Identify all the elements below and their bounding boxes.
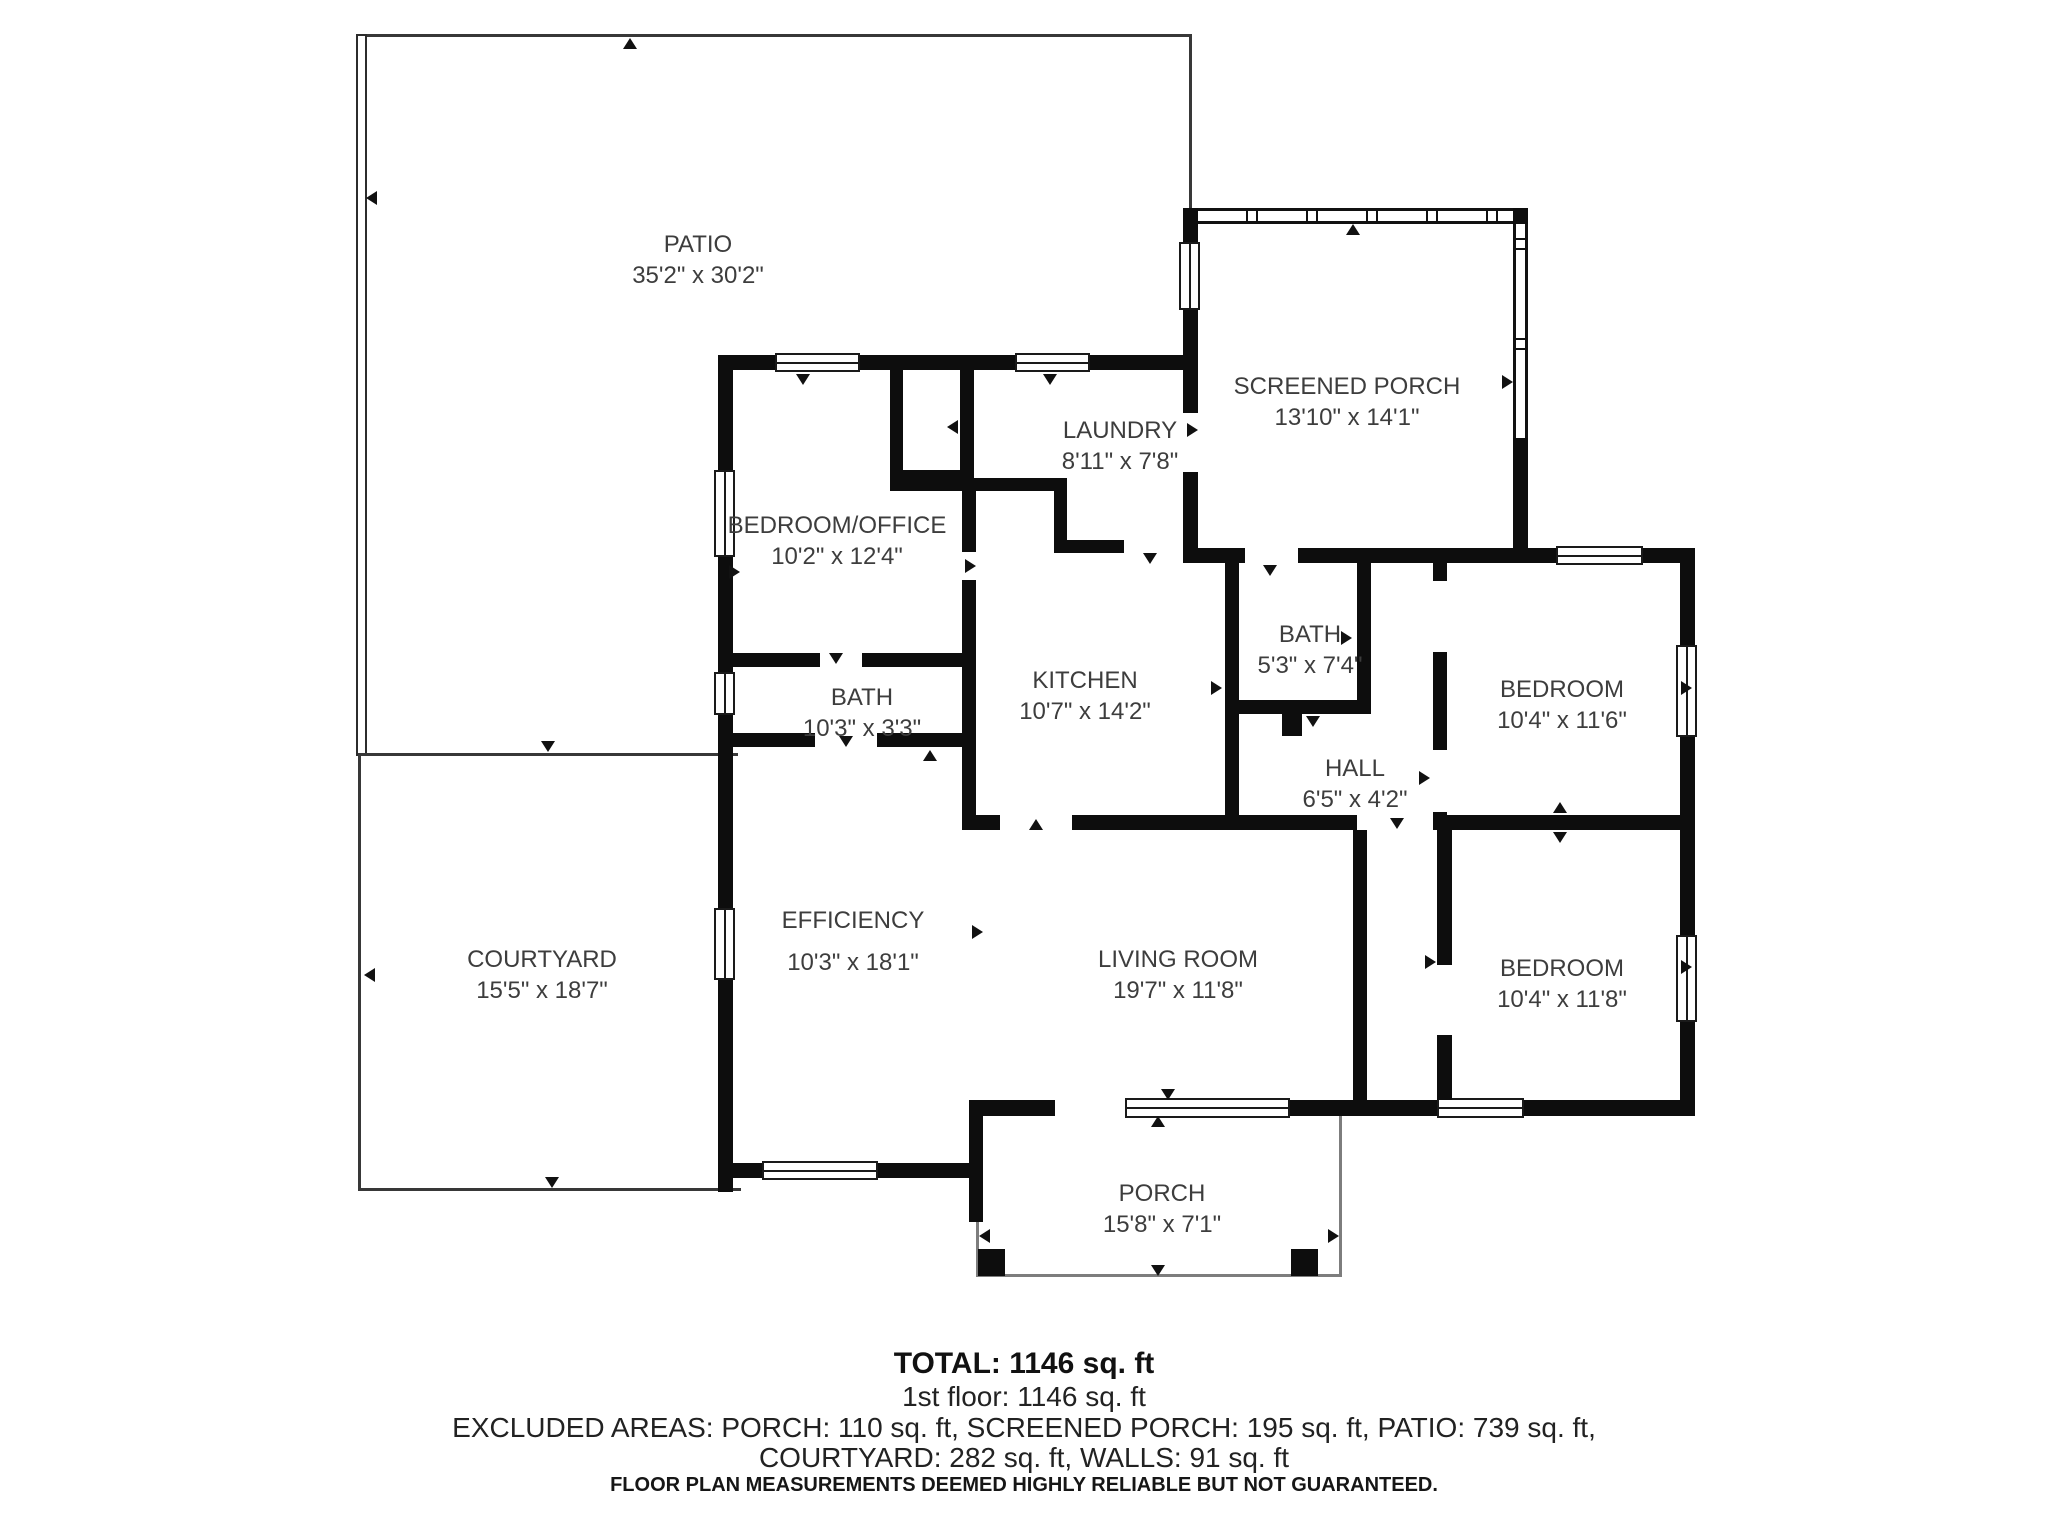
- room-label-bath-small: BATH 10'3" x 3'3": [672, 682, 1052, 744]
- disclaimer-text: FLOOR PLAN MEASUREMENTS DEEMED HIGHLY RE…: [0, 1474, 2048, 1497]
- room-label-hall: HALL 6'5" x 4'2": [1165, 753, 1545, 815]
- wall-segment: [1513, 438, 1528, 548]
- wall-segment: [1183, 472, 1198, 563]
- direction-arrow-icon: [1553, 832, 1567, 843]
- direction-arrow-icon: [545, 1177, 559, 1188]
- direction-arrow-icon: [829, 653, 843, 664]
- room-dims: 10'2" x 12'4": [647, 541, 1027, 572]
- wall-segment: [1054, 540, 1124, 553]
- wall-segment: [718, 355, 733, 470]
- direction-arrow-icon: [1553, 802, 1567, 813]
- wall-segment: [878, 1163, 983, 1178]
- room-label-living-room: LIVING ROOM 19'7" x 11'8": [988, 944, 1368, 1006]
- room-dims: 15'5" x 18'7": [352, 975, 732, 1006]
- direction-arrow-icon: [1306, 716, 1320, 727]
- wall-segment: [1680, 548, 1695, 645]
- room-label-patio: PATIO 35'2" x 30'2": [508, 229, 888, 291]
- direction-arrow-icon: [796, 374, 810, 385]
- direction-arrow-icon: [1390, 818, 1404, 829]
- wall-segment: [1290, 1100, 1437, 1116]
- wall-segment: [1072, 815, 1239, 830]
- wall-segment: [1524, 1100, 1695, 1116]
- window: [762, 1161, 878, 1180]
- window: [1015, 353, 1090, 372]
- wall-segment: [1183, 208, 1198, 242]
- screen-wall-corner: [1513, 208, 1528, 224]
- room-name: HALL: [1165, 753, 1545, 784]
- excluded-areas-text-line1: EXCLUDED AREAS: PORCH: 110 sq. ft, SCREE…: [0, 1412, 2048, 1444]
- room-label-bedroom-lower: BEDROOM 10'4" x 11'8": [1372, 953, 1752, 1015]
- wall-segment: [733, 355, 775, 370]
- direction-arrow-icon: [541, 741, 555, 752]
- patio-bottom-line: [358, 753, 738, 756]
- wall-segment: [1239, 815, 1357, 830]
- direction-arrow-icon: [1143, 553, 1157, 564]
- room-name: BEDROOM: [1372, 674, 1752, 705]
- floor-plan: PATIO 35'2" x 30'2" SCREENED PORCH 13'10…: [0, 0, 2048, 1536]
- wall-segment: [1437, 815, 1695, 830]
- wall-segment: [1437, 830, 1452, 965]
- direction-arrow-icon: [923, 750, 937, 761]
- wall-segment: [1437, 1035, 1452, 1100]
- wall-segment: [1433, 563, 1447, 581]
- window: [1179, 242, 1200, 310]
- room-name: PORCH: [972, 1178, 1352, 1209]
- wall-segment: [1282, 714, 1302, 736]
- porch-post: [978, 1249, 1005, 1276]
- wall-segment: [860, 355, 1015, 370]
- wall-segment: [890, 370, 903, 470]
- window: [1437, 1098, 1524, 1118]
- wall-segment: [1680, 737, 1695, 935]
- total-area-text: TOTAL: 1146 sq. ft: [0, 1347, 2048, 1381]
- room-dims: 10'4" x 11'6": [1372, 705, 1752, 736]
- room-name: BEDROOM: [1372, 953, 1752, 984]
- room-label-bedroom-office: BEDROOM/OFFICE 10'2" x 12'4": [647, 510, 1027, 572]
- room-dims: 35'2" x 30'2": [508, 260, 888, 291]
- room-label-efficiency: EFFICIENCY 10'3" x 18'1": [663, 905, 1043, 978]
- wall-segment: [1198, 548, 1245, 563]
- room-name: EFFICIENCY: [663, 905, 1043, 936]
- wall-segment: [890, 478, 1067, 491]
- room-label-porch: PORCH 15'8" x 7'1": [972, 1178, 1352, 1240]
- direction-arrow-icon: [1151, 1116, 1165, 1127]
- room-dims: 15'8" x 7'1": [972, 1209, 1352, 1240]
- room-name: BEDROOM/OFFICE: [647, 510, 1027, 541]
- room-dims: 10'3" x 18'1": [663, 947, 1043, 978]
- wall-segment: [718, 980, 733, 1192]
- direction-arrow-icon: [1043, 374, 1057, 385]
- window: [775, 353, 860, 372]
- patio-right-line: [1189, 34, 1192, 211]
- room-dims: 8'11" x 7'8": [930, 446, 1310, 477]
- room-dims: 10'4" x 11'8": [1372, 984, 1752, 1015]
- wall-segment: [733, 653, 820, 667]
- room-name: PATIO: [508, 229, 888, 260]
- window: [1125, 1098, 1290, 1118]
- screen-wall-top: [1198, 208, 1513, 224]
- room-dims: 10'3" x 3'3": [672, 713, 1052, 744]
- room-label-bedroom-upper: BEDROOM 10'4" x 11'6": [1372, 674, 1752, 736]
- wall-segment: [718, 1163, 762, 1178]
- wall-segment: [976, 1100, 1055, 1116]
- patio-top-line: [358, 34, 1192, 37]
- direction-arrow-icon: [1029, 819, 1043, 830]
- room-name: SCREENED PORCH: [1157, 371, 1537, 402]
- direction-arrow-icon: [623, 38, 637, 49]
- direction-arrow-icon: [1151, 1265, 1165, 1276]
- room-label-laundry: LAUNDRY 8'11" x 7'8": [930, 415, 1310, 477]
- direction-arrow-icon: [1263, 565, 1277, 576]
- direction-arrow-icon: [366, 191, 377, 205]
- room-dims: 19'7" x 11'8": [988, 975, 1368, 1006]
- porch-post: [1291, 1249, 1318, 1276]
- window: [1556, 546, 1643, 565]
- direction-arrow-icon: [1161, 1089, 1175, 1100]
- room-name: LIVING ROOM: [988, 944, 1368, 975]
- wall-segment: [962, 815, 1000, 830]
- courtyard-bottom-line: [358, 1188, 741, 1191]
- excluded-areas-text-line2: COURTYARD: 282 sq. ft, WALLS: 91 sq. ft: [0, 1442, 2048, 1474]
- room-dims: 6'5" x 4'2": [1165, 784, 1545, 815]
- wall-segment: [1090, 355, 1183, 370]
- room-name: BATH: [1120, 619, 1500, 650]
- direction-arrow-icon: [1346, 224, 1360, 235]
- patio-left-wall: [356, 34, 367, 756]
- first-floor-area-text: 1st floor: 1146 sq. ft: [0, 1381, 2048, 1413]
- room-name: BATH: [672, 682, 1052, 713]
- room-name: LAUNDRY: [930, 415, 1310, 446]
- wall-segment: [1298, 548, 1556, 563]
